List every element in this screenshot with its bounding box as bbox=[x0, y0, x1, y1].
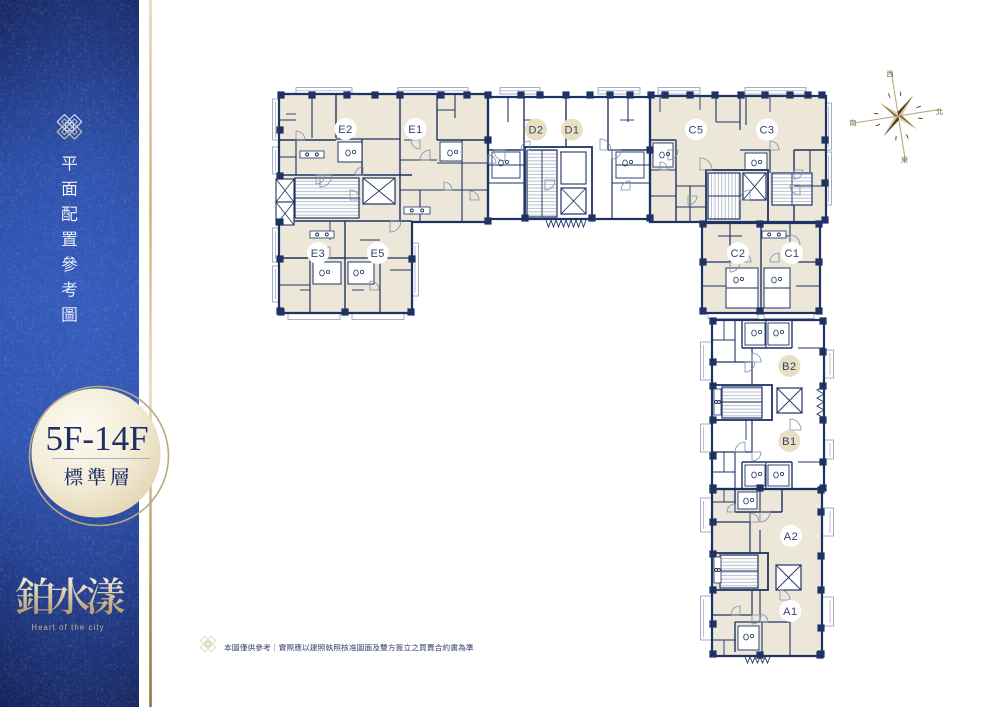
svg-text:E3: E3 bbox=[311, 248, 325, 260]
svg-text:C2: C2 bbox=[730, 248, 745, 260]
svg-text:C5: C5 bbox=[688, 125, 703, 137]
svg-text:B2: B2 bbox=[782, 361, 796, 373]
svg-text:C1: C1 bbox=[784, 248, 799, 260]
svg-text:5F-14F: 5F-14F bbox=[45, 419, 148, 458]
svg-text:A2: A2 bbox=[784, 531, 798, 543]
svg-text:E5: E5 bbox=[370, 248, 384, 260]
svg-text:C3: C3 bbox=[759, 125, 774, 137]
svg-text:Heart of the city: Heart of the city bbox=[31, 623, 104, 632]
svg-text:A1: A1 bbox=[783, 606, 797, 618]
svg-text:E2: E2 bbox=[338, 124, 352, 136]
svg-text:D2: D2 bbox=[528, 125, 543, 137]
svg-text:B1: B1 bbox=[782, 436, 796, 448]
svg-text:D1: D1 bbox=[564, 125, 579, 137]
svg-text:E1: E1 bbox=[408, 124, 422, 136]
